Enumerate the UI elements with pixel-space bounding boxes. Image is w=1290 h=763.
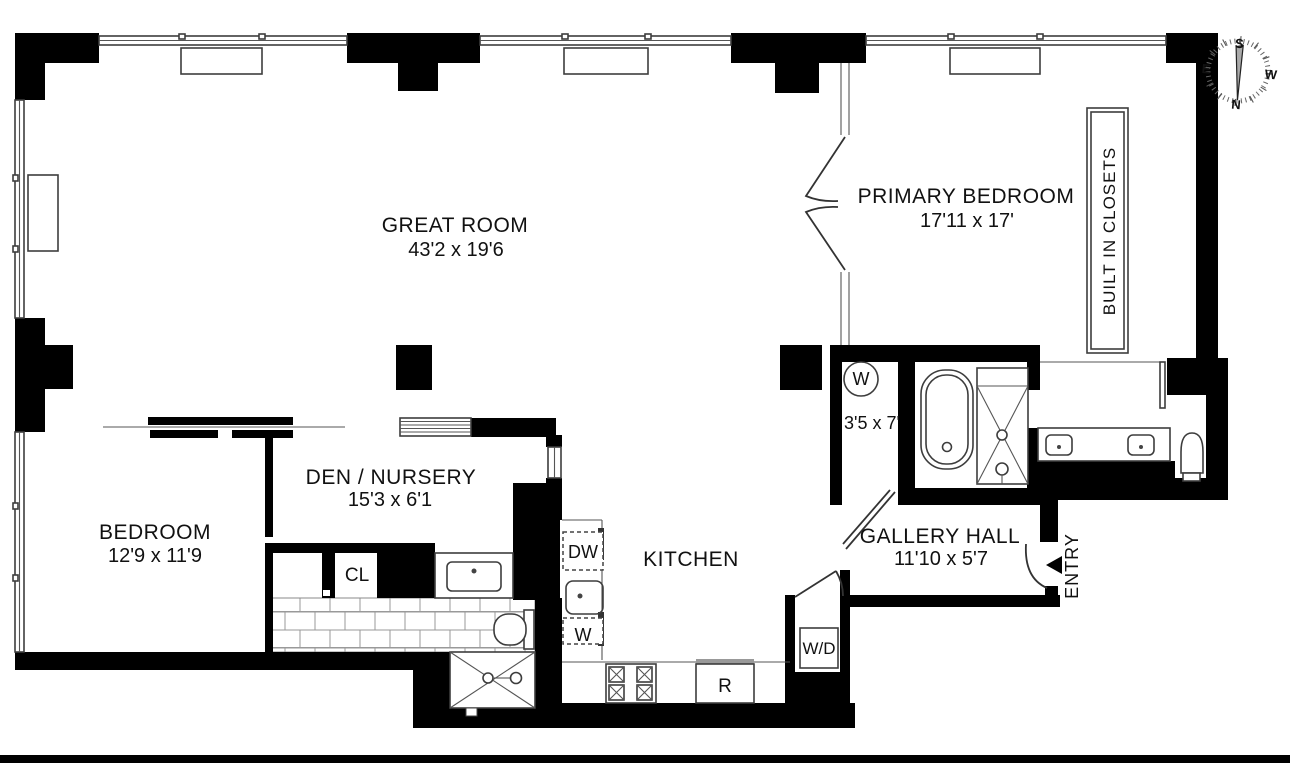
bathtub-icon (921, 370, 973, 469)
compass-east: E (1201, 61, 1211, 77)
background (0, 0, 1290, 763)
floorplan-svg: GREAT ROOM 43'2 x 19'6 PRIMARY BEDROOM 1… (0, 0, 1290, 763)
den-bath-toilet-icon (494, 610, 534, 649)
primary-bedroom-dims: 17'11 x 17' (920, 210, 1014, 232)
gallery-hall-label: GALLERY HALL (860, 525, 1021, 548)
laundry-dims: 3'5 x 7' (844, 413, 900, 433)
wd-label: W/D (802, 639, 835, 658)
built-in-closets-label: BUILT IN CLOSETS (1100, 147, 1119, 315)
bedroom-dims: 12'9 x 11'9 (108, 545, 202, 567)
primary-bedroom-label: PRIMARY BEDROOM (858, 185, 1075, 208)
cl-label: CL (345, 565, 369, 586)
kitchen-w-label: W (575, 625, 592, 645)
compass-north: N (1231, 97, 1242, 113)
refrigerator-label: R (718, 676, 732, 697)
dw-label: DW (568, 542, 598, 562)
bedroom-label: BEDROOM (99, 521, 211, 544)
great-room-label: GREAT ROOM (382, 214, 529, 237)
washer-label: W (853, 369, 870, 389)
bottom-rule (0, 755, 1290, 763)
den-nursery-label: DEN / NURSERY (306, 466, 477, 489)
den-bath-shower-icon (450, 652, 535, 716)
den-nursery-dims: 15'3 x 6'1 (348, 489, 432, 511)
compass-south: S (1234, 36, 1244, 52)
great-room-dims: 43'2 x 19'6 (408, 239, 504, 261)
primary-shower-icon (977, 368, 1028, 484)
primary-vanity (1038, 428, 1170, 461)
stove-icon (606, 664, 656, 703)
bath-door-leaf (1160, 362, 1165, 408)
entry-label: ENTRY (1062, 533, 1082, 599)
primary-toilet-icon (1181, 433, 1203, 481)
kitchen-label: KITCHEN (643, 548, 739, 571)
compass-west: W (1264, 66, 1278, 82)
gallery-hall-dims: 11'10 x 5'7 (894, 548, 988, 570)
floorplan-page: GREAT ROOM 43'2 x 19'6 PRIMARY BEDROOM 1… (0, 0, 1290, 763)
